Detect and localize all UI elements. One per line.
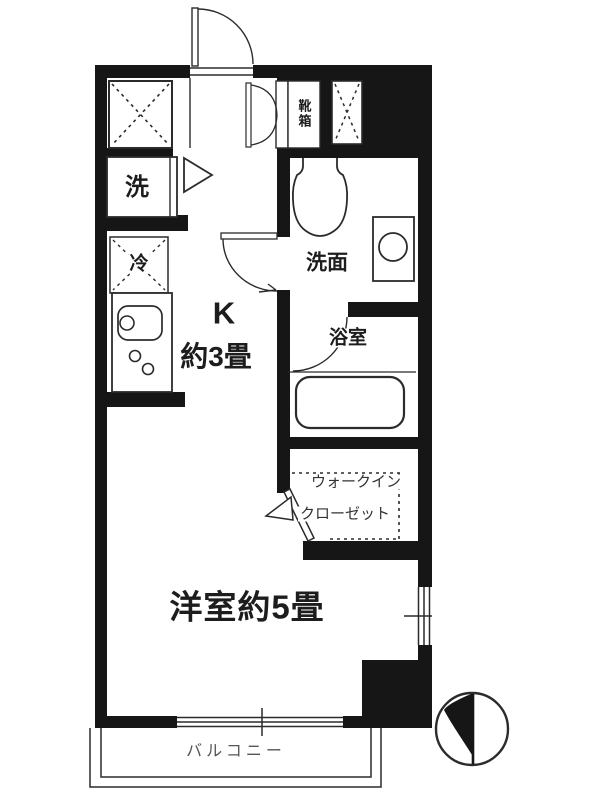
kitchen-label-size: 約3畳: [180, 343, 252, 371]
toilet-icon: [293, 158, 347, 236]
cabinet-face: [276, 81, 288, 148]
washbasin-icon: [373, 217, 414, 281]
wic-label-line1: ウォークイン: [309, 475, 403, 490]
washroom-label: 洗面: [306, 253, 348, 274]
kitchen-label-k: K: [213, 298, 235, 329]
entrance-opening: [190, 65, 253, 78]
double-closet-door-icon: [246, 83, 277, 147]
north-compass-icon: [436, 693, 508, 765]
laundry-label: 洗: [125, 176, 149, 200]
door-swing-triangle-icon: [184, 158, 212, 192]
refrigerator-label: 冷: [127, 255, 150, 274]
entrance-door-icon: [192, 8, 253, 66]
window-right-icon: [404, 587, 432, 645]
storage-top-left: [109, 81, 172, 148]
shoe-cabinet-label: 靴箱: [298, 99, 311, 129]
storage-top-right: [332, 81, 362, 144]
bathtub-icon: [296, 377, 404, 428]
door-swing-triangle-icon: [266, 497, 293, 520]
window-balcony-icon: [177, 708, 343, 736]
floor-plan: 洗 冷 靴箱 洗面 浴室 K 約3畳 ウォークイン クローゼット 洋室約5畳 バ…: [0, 0, 600, 800]
bathroom-label: 浴室: [327, 329, 369, 348]
kitchen-counter: [112, 293, 172, 392]
entrance: [190, 8, 253, 148]
laundry-space: [107, 157, 212, 217]
balcony-label: バルコニー: [186, 744, 286, 760]
washroom-door-icon: [221, 233, 277, 292]
wic-label-line2: クローゼット: [298, 507, 392, 522]
western-room-label: 洋室約5畳: [169, 591, 324, 624]
